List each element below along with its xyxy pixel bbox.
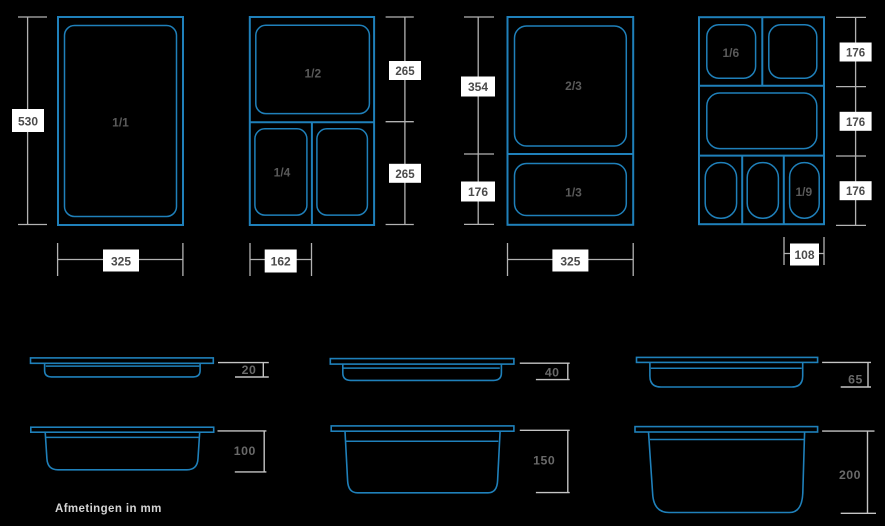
svg-text:Afmetingen in mm: Afmetingen in mm [55,503,162,515]
svg-text:1/6: 1/6 [722,46,739,60]
svg-text:265: 265 [395,66,415,78]
svg-text:150: 150 [533,454,555,468]
svg-text:1/4: 1/4 [274,165,291,179]
svg-text:325: 325 [560,255,580,269]
svg-text:108: 108 [794,248,814,262]
svg-text:1/3: 1/3 [565,186,582,200]
svg-text:176: 176 [846,186,865,198]
svg-text:176: 176 [846,117,865,129]
svg-text:2/3: 2/3 [565,79,582,93]
svg-text:176: 176 [846,48,865,60]
svg-text:100: 100 [234,444,256,458]
svg-text:265: 265 [395,169,415,181]
svg-text:65: 65 [848,373,863,387]
svg-text:20: 20 [242,363,257,377]
svg-text:1/2: 1/2 [304,66,321,80]
svg-text:530: 530 [18,115,38,129]
svg-text:162: 162 [271,255,291,269]
svg-text:200: 200 [839,468,861,482]
svg-text:354: 354 [468,80,488,94]
svg-text:1/9: 1/9 [795,185,812,199]
svg-text:1/1: 1/1 [112,115,129,129]
svg-text:325: 325 [111,255,131,269]
svg-text:40: 40 [545,365,560,379]
svg-text:176: 176 [468,185,488,199]
